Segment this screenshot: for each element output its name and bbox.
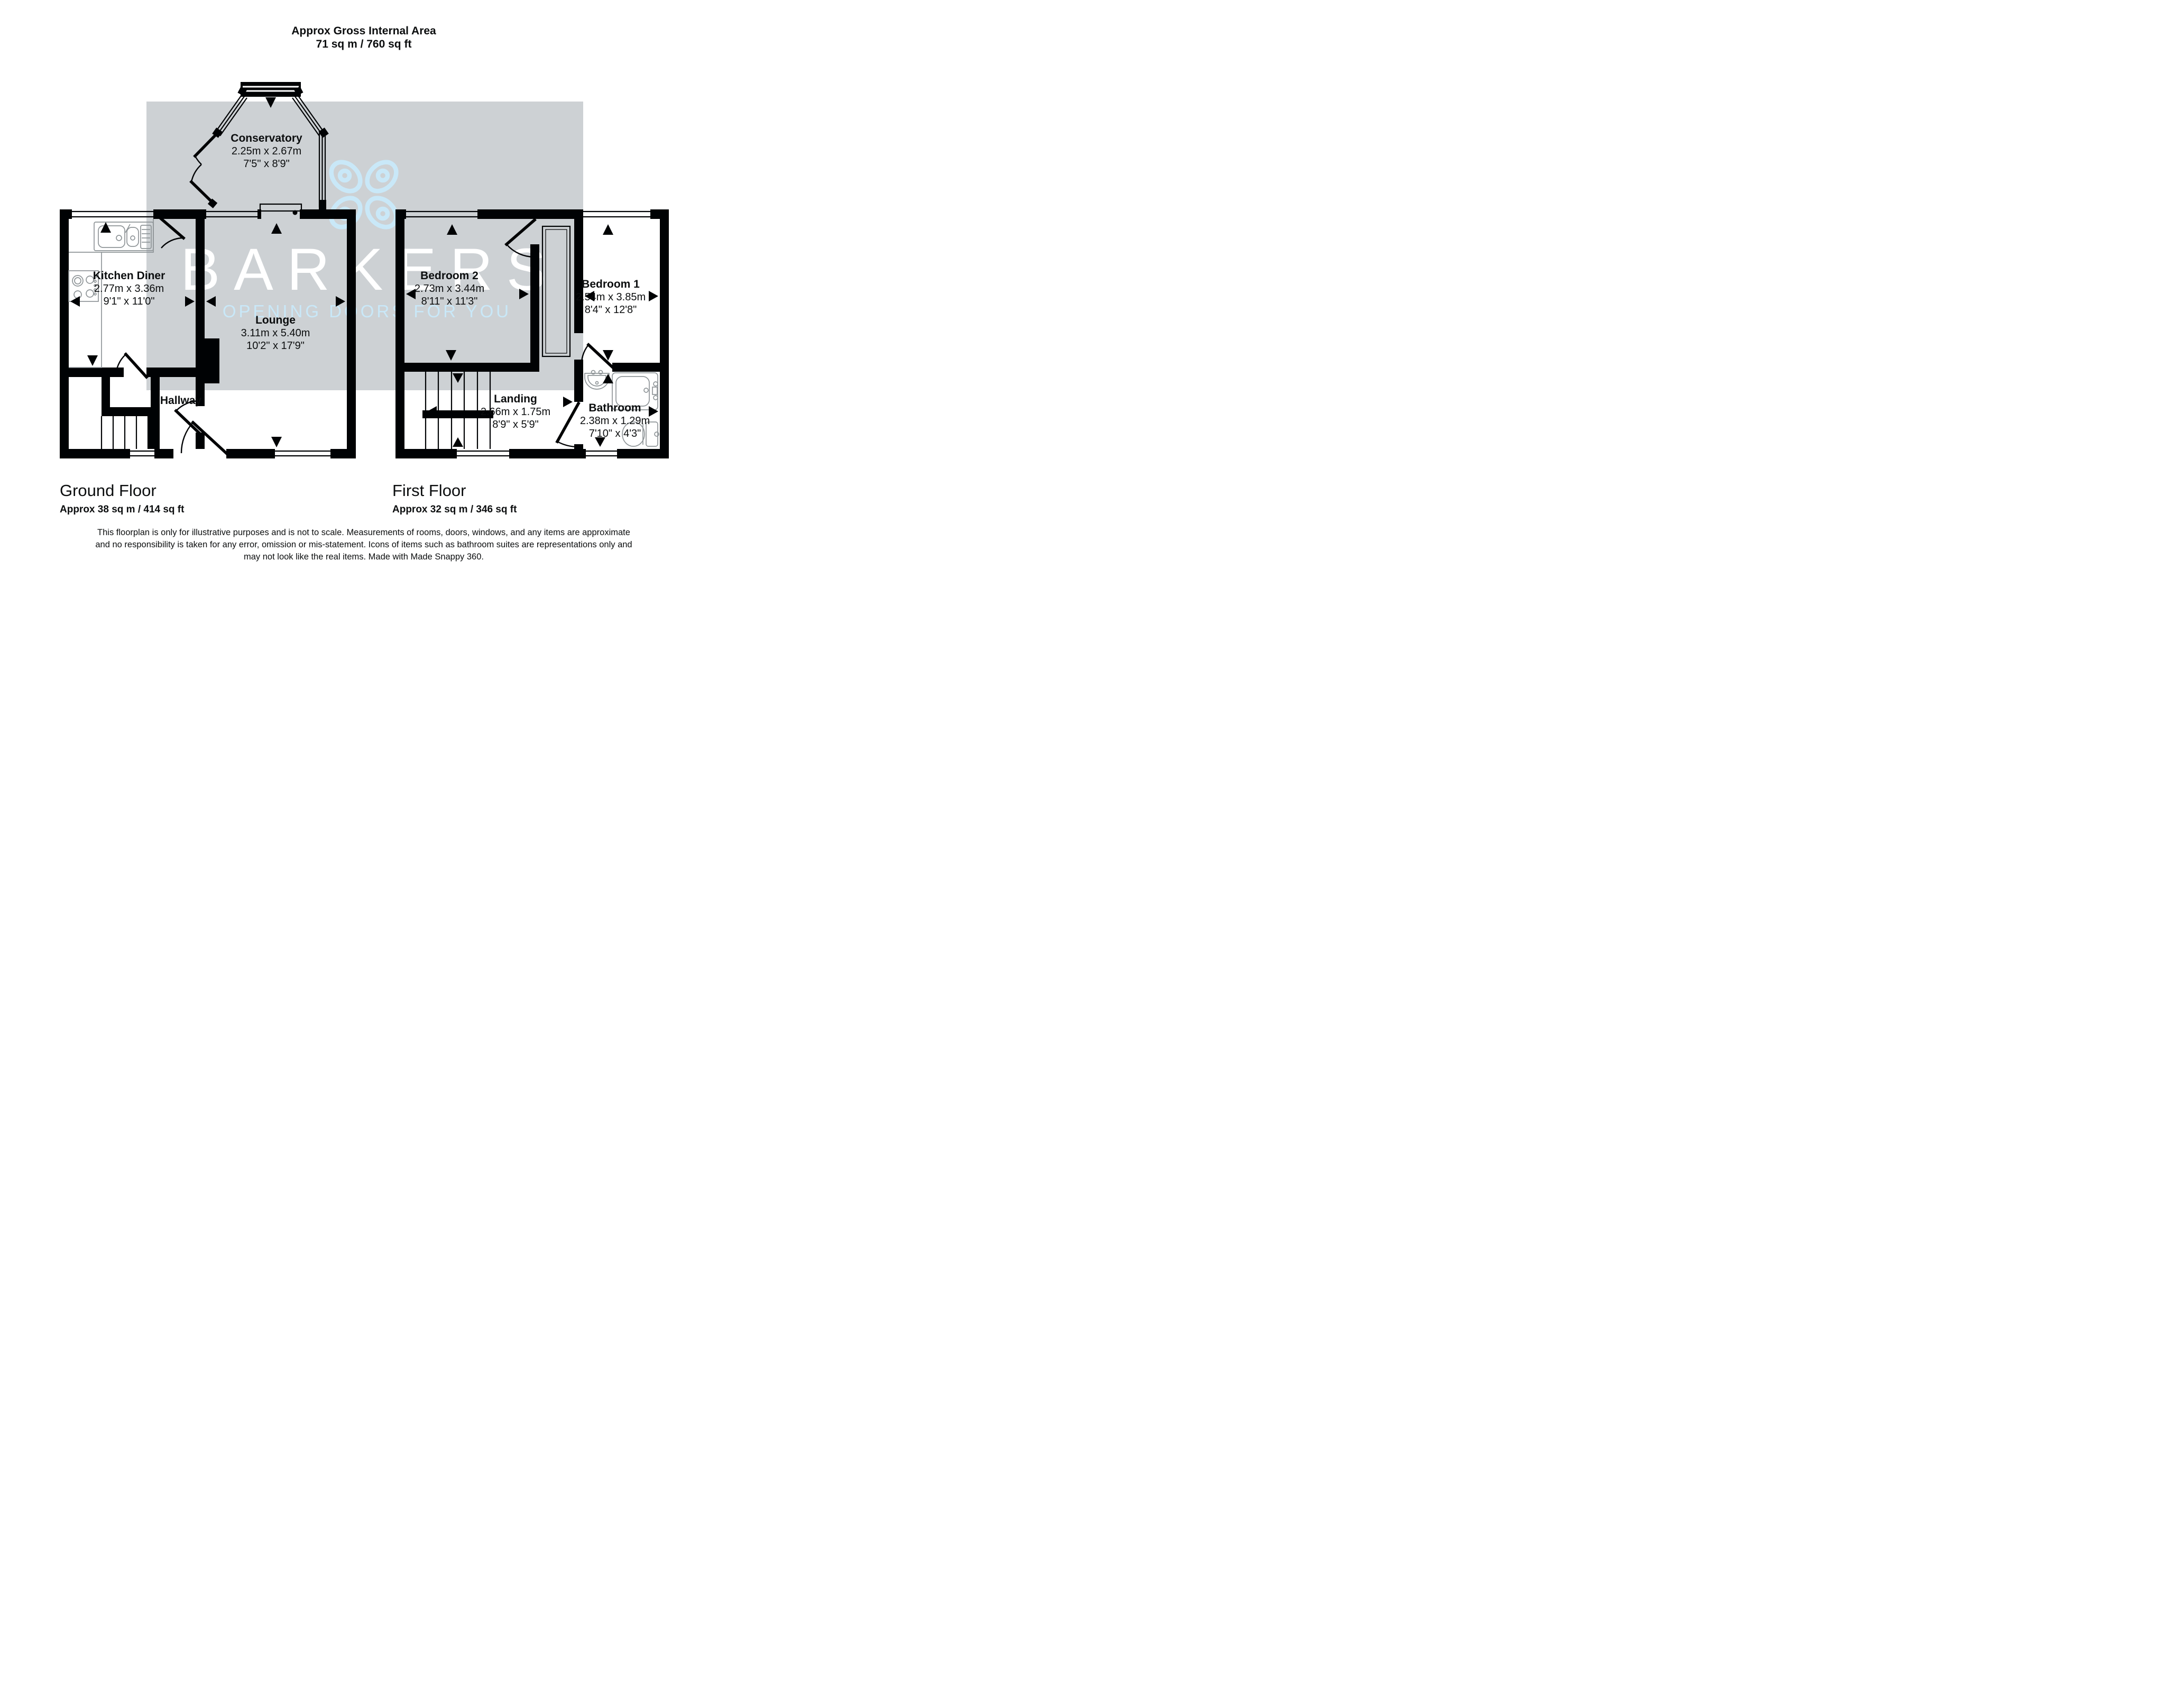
lounge-imperial: 10'2" x 17'9"	[246, 340, 305, 352]
lounge-bottom-window	[275, 451, 330, 456]
landing-metric: 2.66m x 1.75m	[481, 406, 550, 418]
bedroom1-label: Bedroom 1	[582, 278, 640, 290]
bedroom1-metric: 2.54m x 3.85m	[576, 291, 646, 303]
gross-internal-area-value: 71 sq m / 760 sq ft	[316, 38, 412, 50]
kitchen-metric: 2.77m x 3.36m	[94, 283, 164, 295]
disclaimer-line-3: may not look like the real items. Made w…	[244, 552, 484, 562]
bathroom-label: Bathroom	[588, 402, 641, 414]
bedroom2-metric: 2.73m x 3.44m	[415, 283, 484, 295]
landing-label: Landing	[494, 393, 537, 405]
chimney-breast	[205, 338, 219, 383]
disclaimer-line-2: and no responsibility is taken for any e…	[95, 540, 632, 549]
conservatory-metric: 2.25m x 2.67m	[232, 145, 301, 157]
conservatory-imperial: 7'5" x 8'9"	[243, 158, 289, 170]
bedroom2-label: Bedroom 2	[420, 270, 478, 282]
bedroom2-imperial: 8'11" x 11'3"	[421, 296, 478, 307]
bathroom-window	[586, 451, 617, 456]
landing-imperial: 8'9" x 5'9"	[492, 419, 538, 430]
hall-front-window	[130, 451, 154, 456]
hallway-label: Hallway	[160, 394, 202, 407]
disclaimer-line-1: This floorplan is only for illustrative …	[97, 528, 630, 537]
watermark-brand-text: BARKERS	[180, 236, 559, 302]
first-floor-title: First Floor	[392, 481, 466, 500]
ground-floor-title: Ground Floor	[60, 481, 157, 500]
gross-internal-area-title: Approx Gross Internal Area	[291, 25, 436, 37]
kitchen-label: Kitchen Diner	[93, 270, 165, 282]
first-floor-area: Approx 32 sq m / 346 sq ft	[392, 504, 517, 515]
lounge-metric: 3.11m x 5.40m	[241, 327, 310, 339]
lounge-label: Lounge	[255, 314, 296, 326]
kitchen-sink	[94, 222, 153, 251]
floorplan-page: Approx Gross Internal Area 71 sq m / 760…	[0, 0, 727, 570]
conservatory-label: Conservatory	[231, 132, 302, 144]
ground-floor-stairs	[102, 416, 148, 449]
bathroom-metric: 2.38m x 1.29m	[580, 415, 650, 427]
bedroom1-window	[583, 212, 650, 217]
bedroom1-imperial: 8'4" x 12'8"	[585, 304, 637, 316]
kitchen-window	[72, 212, 153, 217]
landing-window	[457, 451, 509, 456]
bathroom-door	[557, 403, 578, 447]
bathroom-imperial: 7'10" x 4'3"	[589, 428, 641, 439]
floorplan-canvas: Approx Gross Internal Area 71 sq m / 760…	[0, 0, 727, 570]
kitchen-imperial: 9'1" x 11'0"	[103, 296, 154, 307]
ground-floor-area: Approx 38 sq m / 414 sq ft	[60, 504, 185, 515]
